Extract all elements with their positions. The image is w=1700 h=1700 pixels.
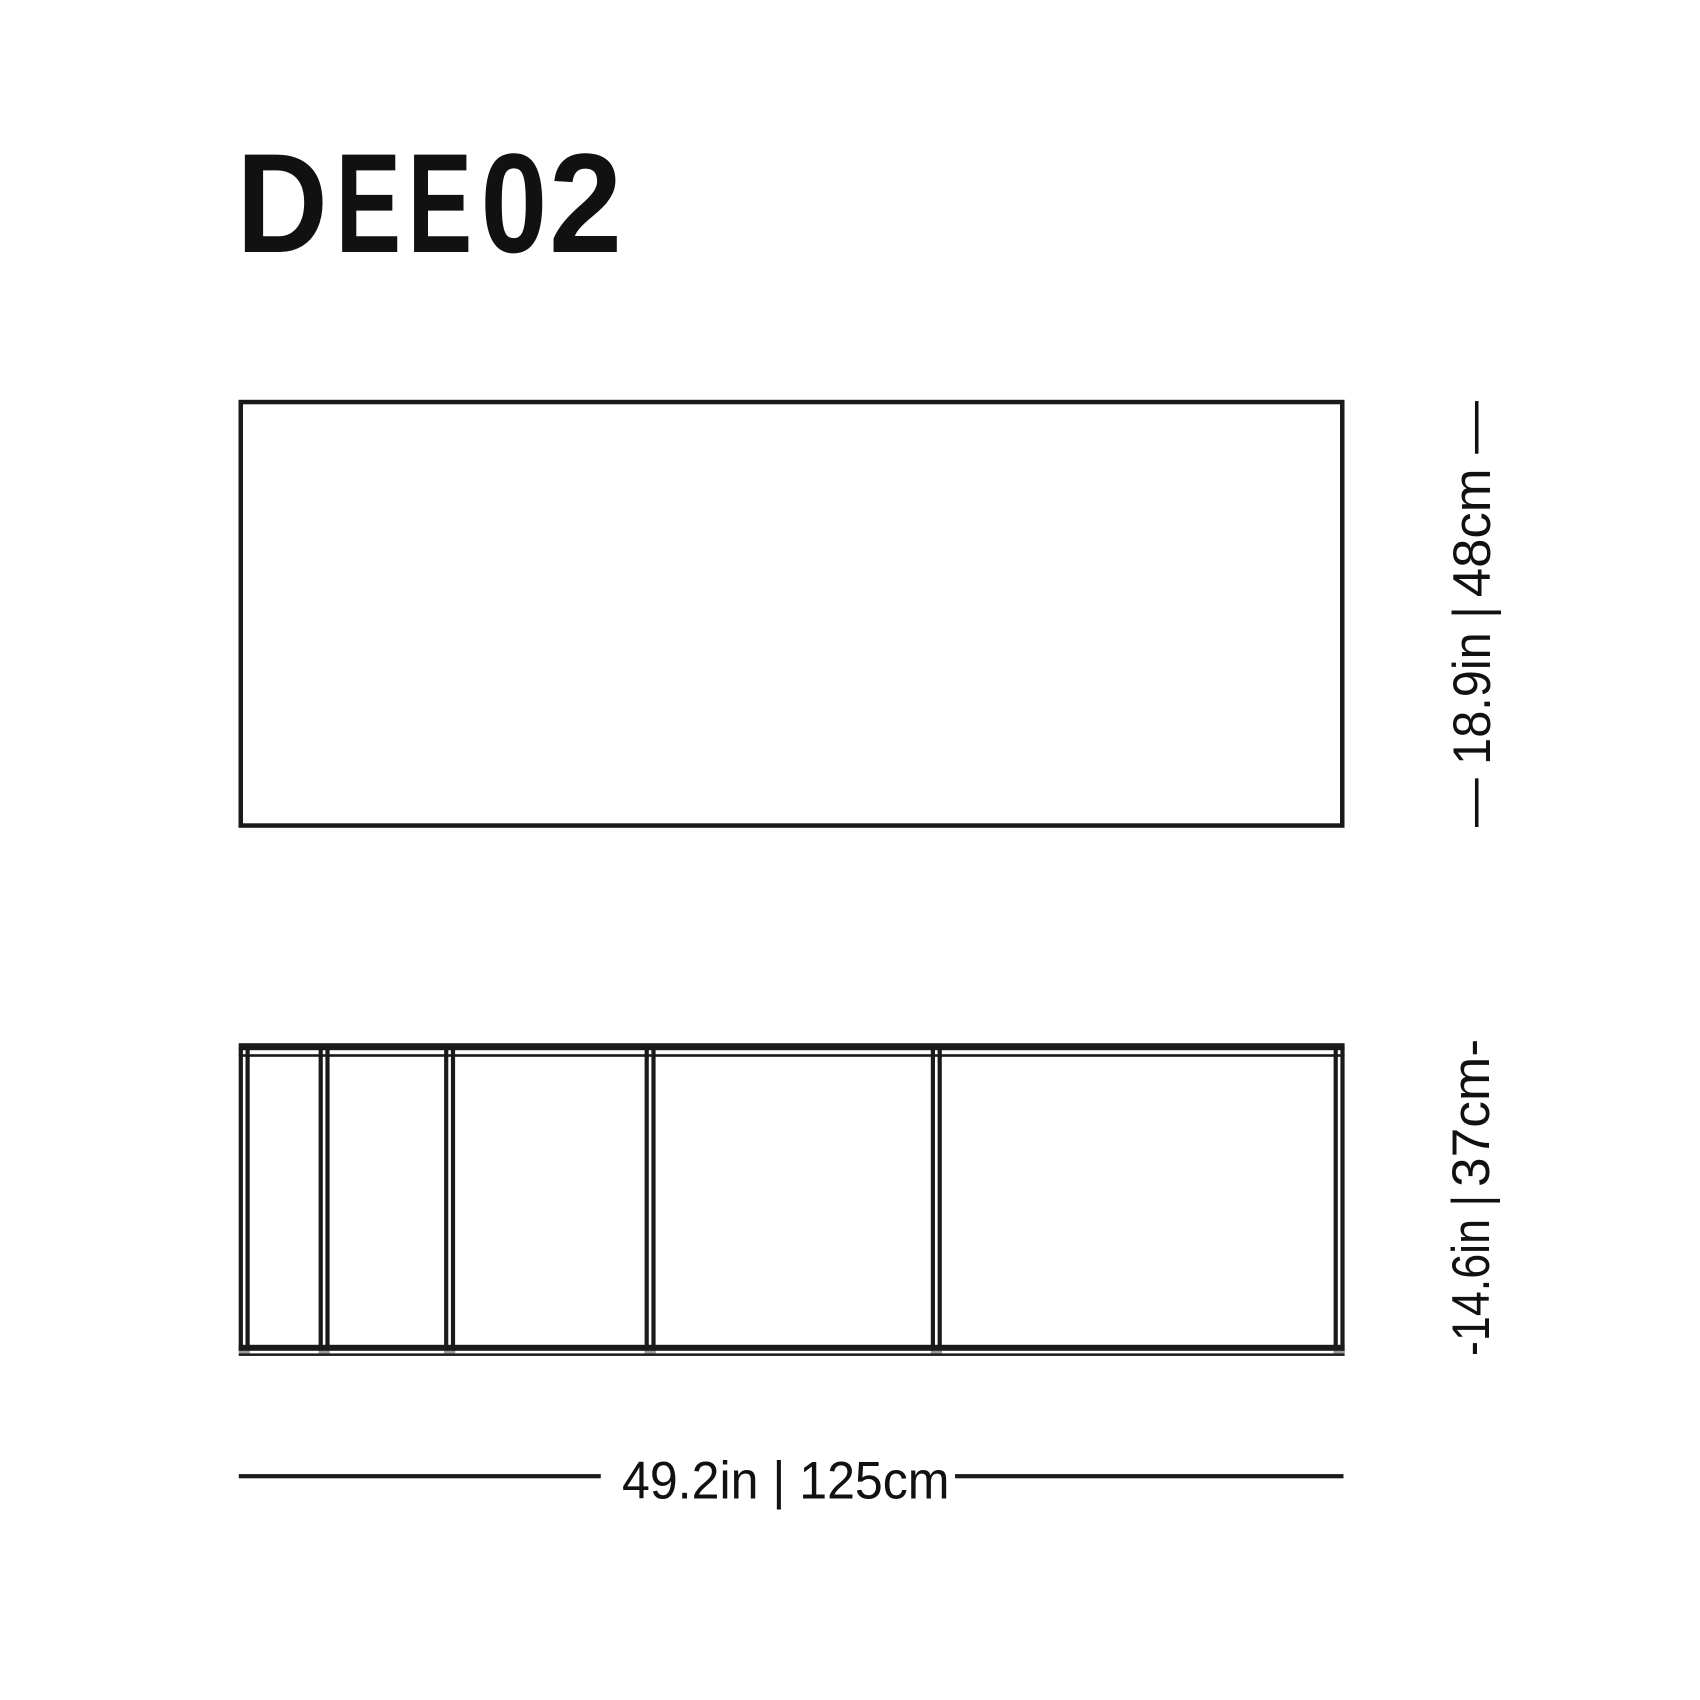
svg-text:E: E xyxy=(408,124,473,282)
svg-text:-14.6in |: -14.6in | xyxy=(1442,1195,1501,1356)
svg-text:— 18.9in |: — 18.9in | xyxy=(1443,606,1502,827)
svg-text:D: D xyxy=(236,124,327,282)
svg-text:48cm —: 48cm — xyxy=(1443,401,1502,597)
svg-text:E: E xyxy=(336,124,401,282)
svg-text:0: 0 xyxy=(481,124,548,282)
svg-text:37cm-: 37cm- xyxy=(1442,1039,1501,1187)
svg-text:49.2in | 125cm: 49.2in | 125cm xyxy=(622,1452,950,1511)
svg-text:2: 2 xyxy=(549,124,622,282)
